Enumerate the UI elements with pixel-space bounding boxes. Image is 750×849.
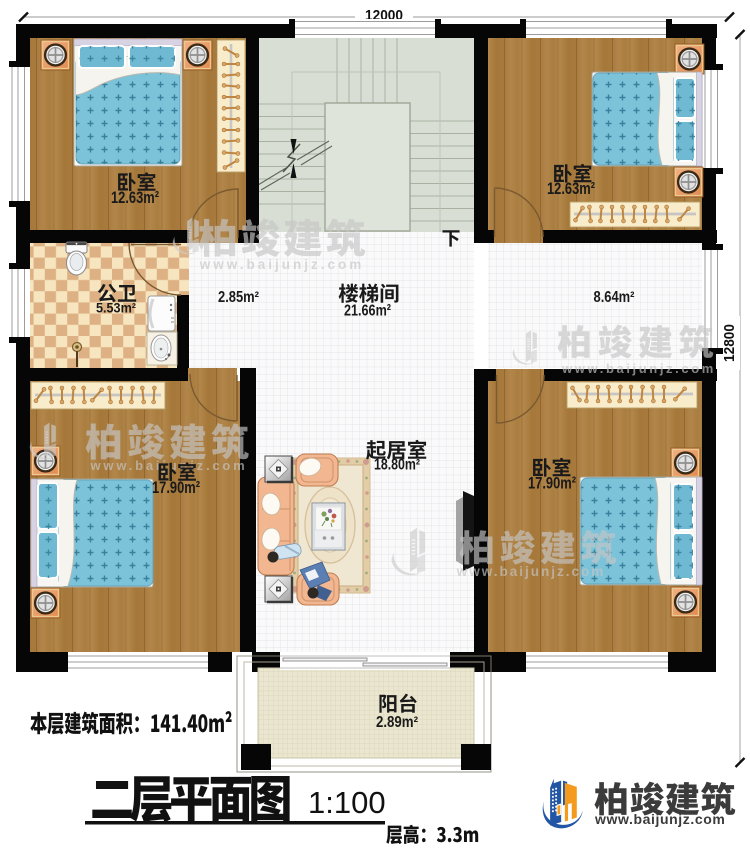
svg-text:www.baijunjz.com: www.baijunjz.com — [561, 361, 716, 376]
svg-text:17.90m²: 17.90m² — [152, 478, 200, 497]
svg-text:www.baijunjz.com: www.baijunjz.com — [456, 564, 606, 579]
svg-text:17.90m²: 17.90m² — [528, 474, 576, 493]
svg-text:12.63m²: 12.63m² — [111, 188, 159, 207]
svg-text:8.64m²: 8.64m² — [594, 289, 635, 306]
svg-text:18.80m²: 18.80m² — [374, 457, 420, 474]
svg-text:2.89m²: 2.89m² — [376, 714, 418, 731]
svg-text:www.baijunjz.com: www.baijunjz.com — [594, 811, 725, 827]
svg-text:www.baijunjz.com: www.baijunjz.com — [90, 458, 248, 473]
svg-text:21.66m²: 21.66m² — [344, 303, 391, 320]
svg-text:5.53m²: 5.53m² — [96, 300, 136, 316]
svg-text:12800: 12800 — [721, 324, 738, 362]
svg-text:2.85m²: 2.85m² — [218, 289, 259, 306]
svg-text:1:100: 1:100 — [308, 785, 386, 820]
svg-text:12.63m²: 12.63m² — [547, 179, 595, 198]
svg-text:www.baijunjz.com: www.baijunjz.com — [199, 257, 365, 272]
